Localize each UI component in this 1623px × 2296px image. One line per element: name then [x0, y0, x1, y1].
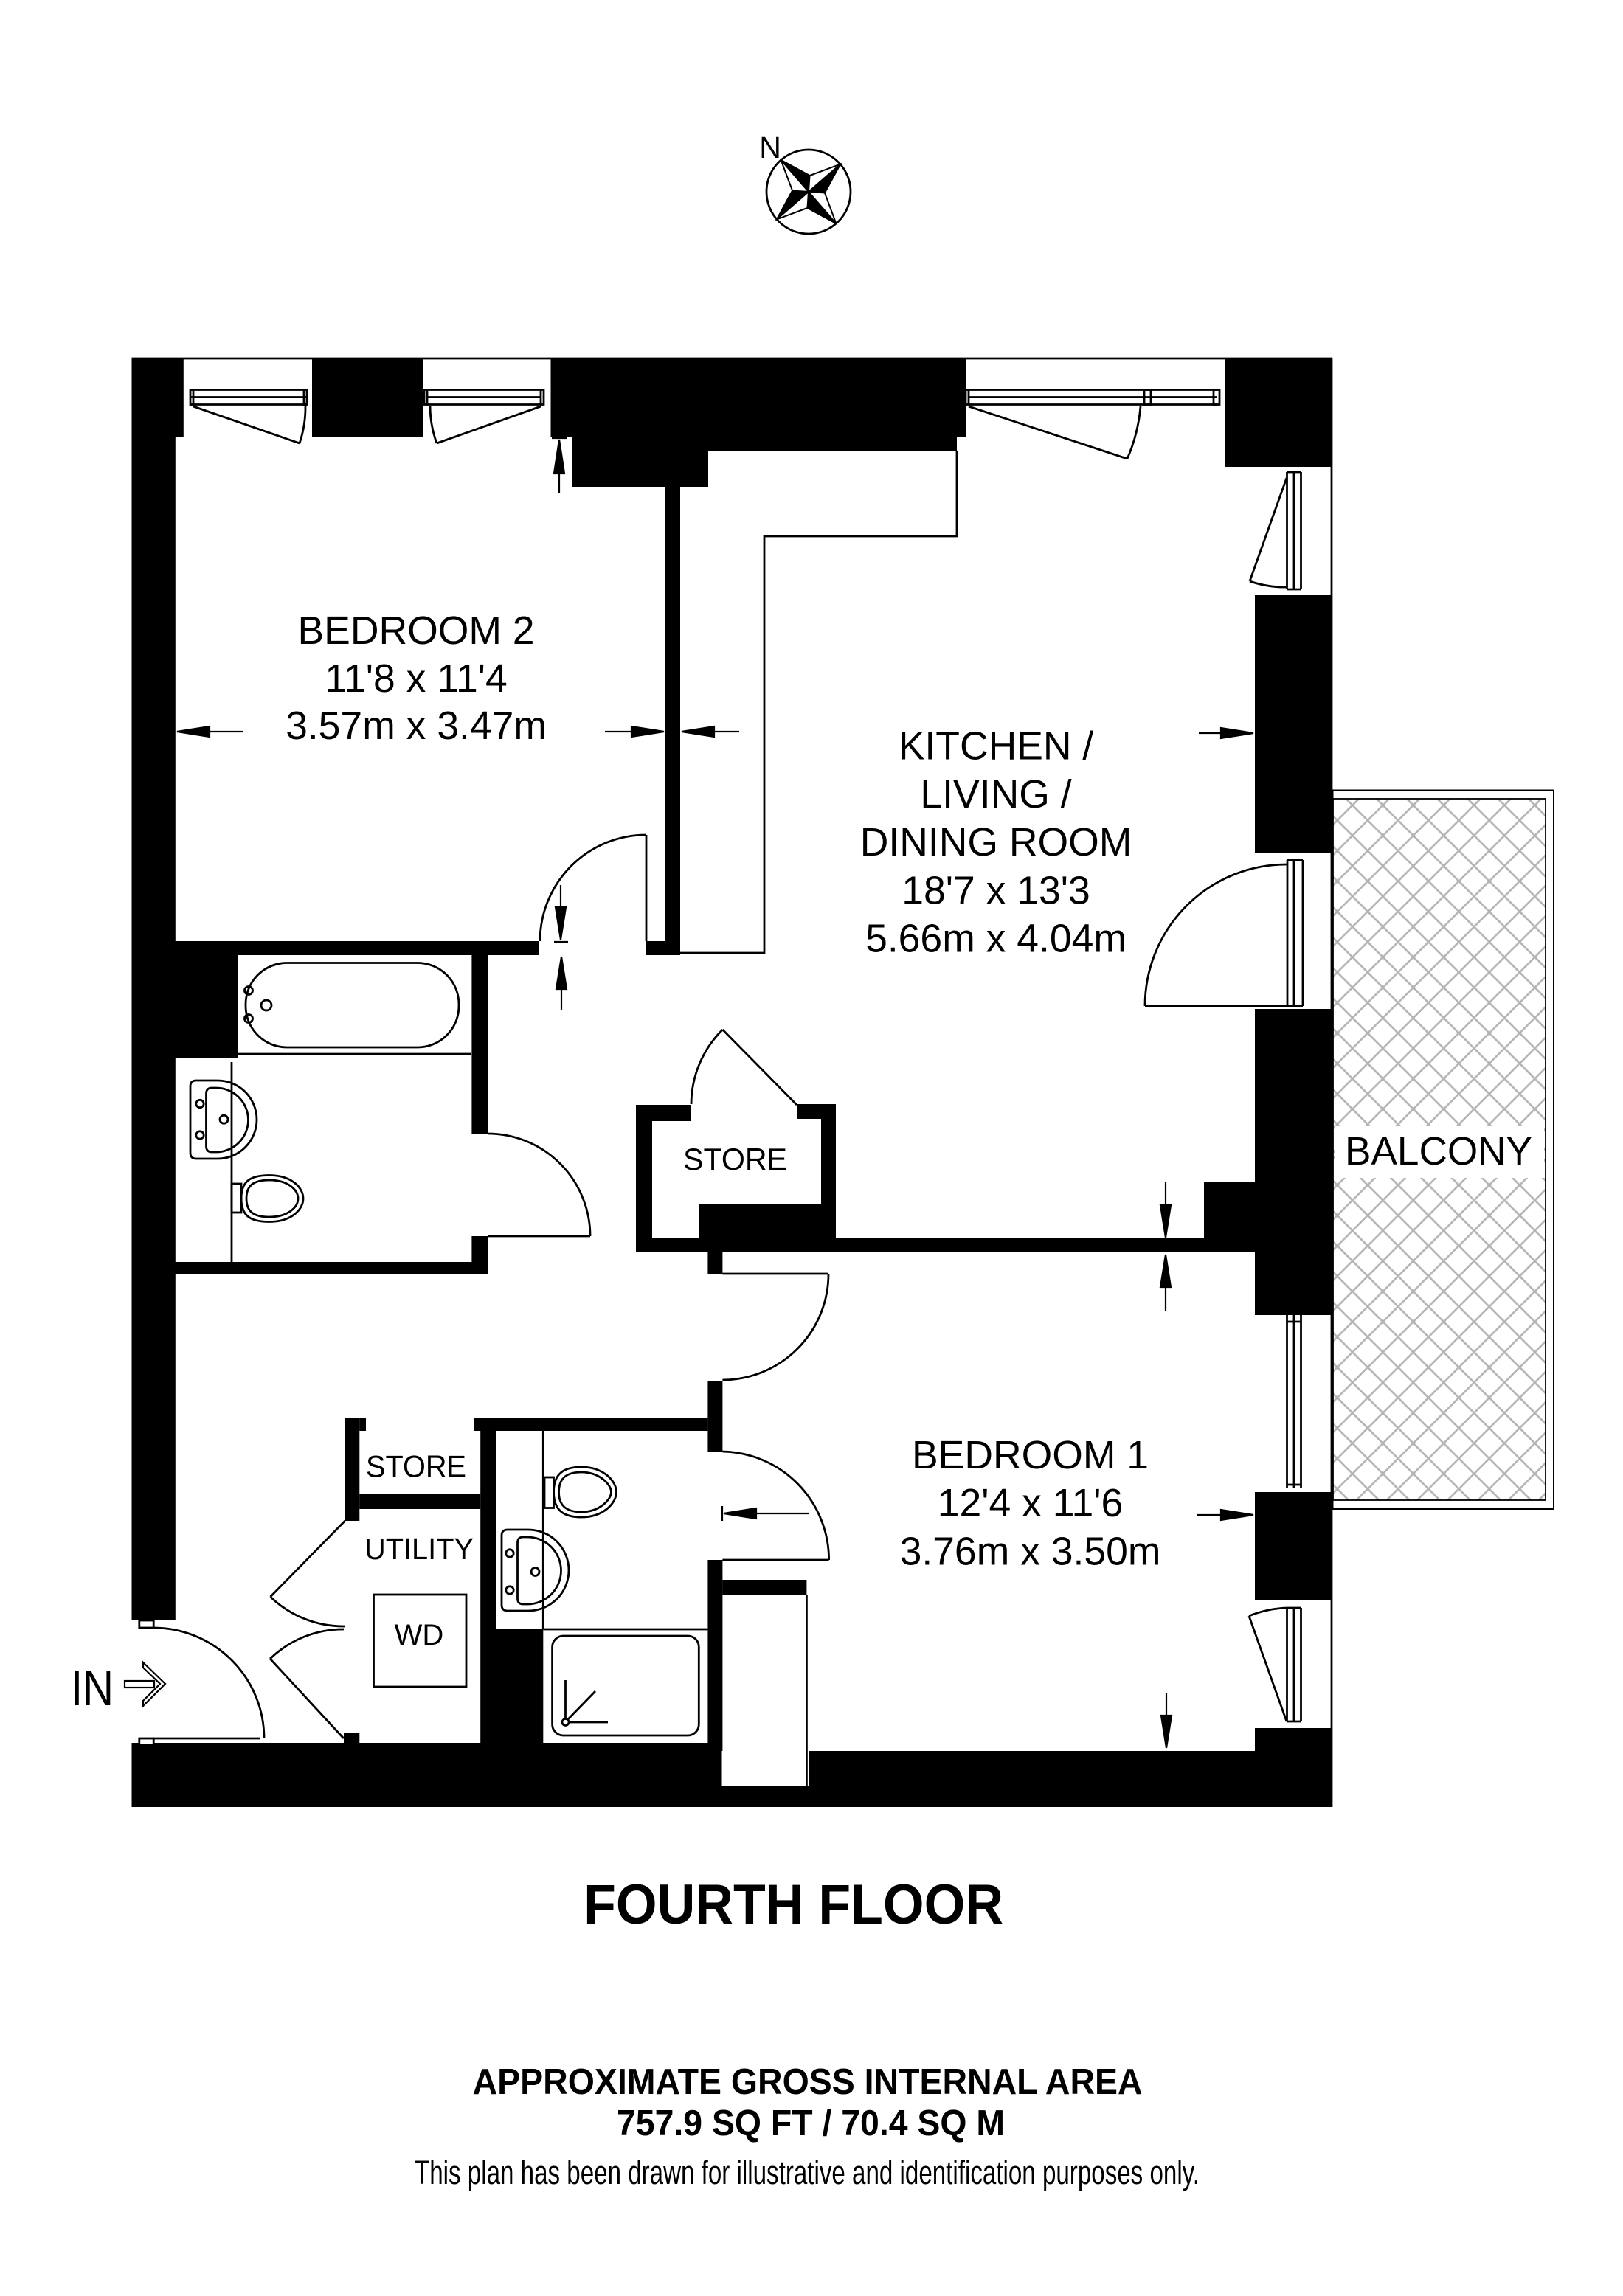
- svg-text:3.76m x 3.50m: 3.76m x 3.50m: [900, 1530, 1161, 1573]
- svg-text:IN: IN: [71, 1660, 114, 1716]
- svg-text:DINING ROOM: DINING ROOM: [860, 821, 1132, 864]
- svg-text:This plan has been drawn for i: This plan has been drawn for illustrativ…: [415, 2154, 1200, 2191]
- svg-text:11'8 x 11'4: 11'8 x 11'4: [325, 657, 508, 701]
- svg-text:BEDROOM 1: BEDROOM 1: [912, 1434, 1149, 1477]
- svg-text:3.57m x 3.47m: 3.57m x 3.47m: [286, 704, 547, 748]
- svg-text:BALCONY: BALCONY: [1345, 1130, 1532, 1173]
- svg-text:STORE: STORE: [366, 1449, 466, 1484]
- svg-text:5.66m x 4.04m: 5.66m x 4.04m: [865, 917, 1127, 960]
- svg-text:BEDROOM 2: BEDROOM 2: [297, 609, 534, 653]
- svg-text:N: N: [759, 131, 781, 164]
- svg-text:STORE: STORE: [683, 1142, 787, 1176]
- svg-text:WD: WD: [395, 1619, 444, 1651]
- svg-text:FOURTH FLOOR: FOURTH FLOOR: [584, 1873, 1003, 1936]
- svg-text:LIVING /: LIVING /: [920, 773, 1071, 816]
- svg-text:APPROXIMATE GROSS INTERNAL ARE: APPROXIMATE GROSS INTERNAL AREA: [473, 2062, 1143, 2102]
- svg-text:UTILITY: UTILITY: [364, 1532, 474, 1566]
- svg-text:18'7 x 13'3: 18'7 x 13'3: [902, 869, 1090, 912]
- svg-text:757.9 SQ FT / 70.4 SQ M: 757.9 SQ FT / 70.4 SQ M: [617, 2103, 1005, 2143]
- svg-text:KITCHEN /: KITCHEN /: [899, 725, 1094, 769]
- svg-text:12'4 x 11'6: 12'4 x 11'6: [938, 1482, 1123, 1525]
